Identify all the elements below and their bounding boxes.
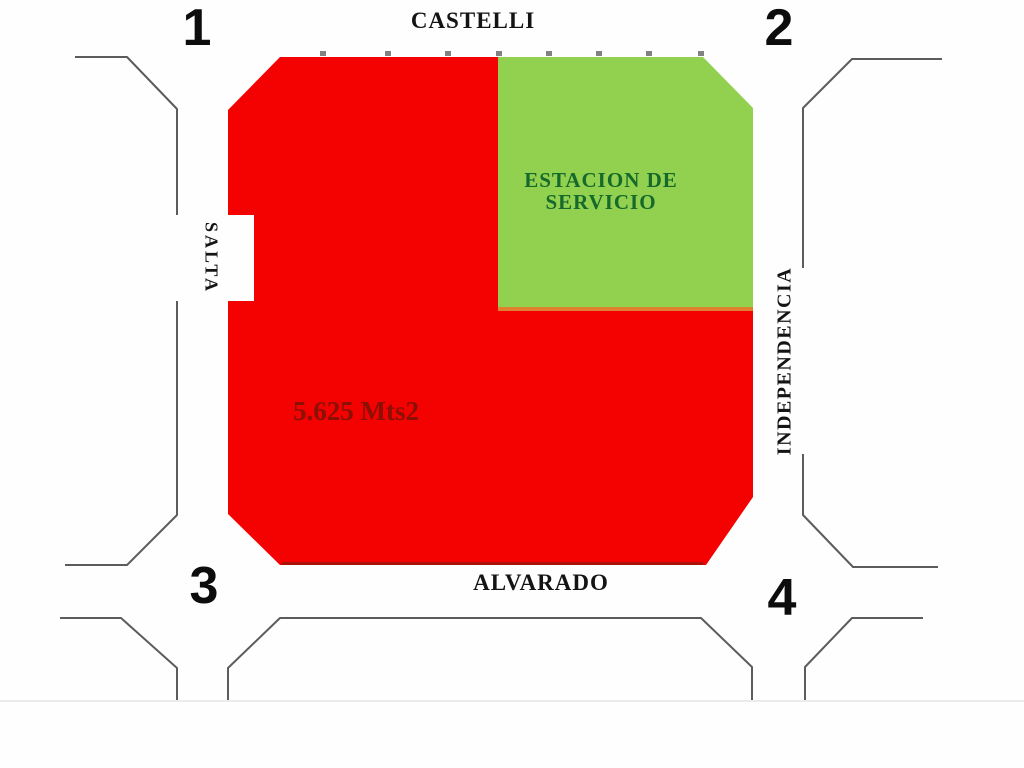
southeast-block-curb-line — [805, 618, 923, 702]
station-label-line2: SERVICIO — [524, 191, 678, 213]
corner-number-1: 1 — [183, 0, 212, 58]
east-block-curb-line — [803, 59, 942, 567]
salta-label-box: SALTA — [168, 215, 254, 301]
street-label-alvarado: ALVARADO — [473, 570, 609, 596]
street-label-salta: SALTA — [201, 222, 222, 294]
lot-area-label: 5.625 Mts2 — [293, 396, 419, 427]
southwest-block-curb-line — [60, 618, 177, 702]
independencia-label-box: INDEPENDENCIA — [757, 268, 813, 454]
street-label-castelli: CASTELLI — [411, 8, 535, 34]
station-label: ESTACION DE SERVICIO — [524, 169, 678, 213]
west-block-curb-line — [65, 57, 177, 565]
station-label-line1: ESTACION DE — [524, 169, 678, 191]
drawing-bottom-edge — [0, 700, 1024, 702]
lot-location-diagram: SALTA INDEPENDENCIA CASTELLI ALVARADO 1 … — [0, 0, 1024, 768]
street-label-independencia: INDEPENDENCIA — [774, 267, 797, 455]
tick-mark — [445, 51, 451, 56]
south-block-curb-line — [228, 618, 752, 702]
tick-mark — [646, 51, 652, 56]
tick-mark — [698, 51, 704, 56]
corner-number-3: 3 — [190, 556, 219, 616]
tick-mark — [320, 51, 326, 56]
tick-mark — [385, 51, 391, 56]
tick-mark — [546, 51, 552, 56]
tick-mark — [596, 51, 602, 56]
corner-number-2: 2 — [765, 0, 794, 58]
station-lot-divider — [498, 307, 753, 311]
tick-mark — [496, 51, 502, 56]
corner-number-4: 4 — [768, 568, 797, 628]
lot-bottom-edge-line — [282, 562, 703, 565]
